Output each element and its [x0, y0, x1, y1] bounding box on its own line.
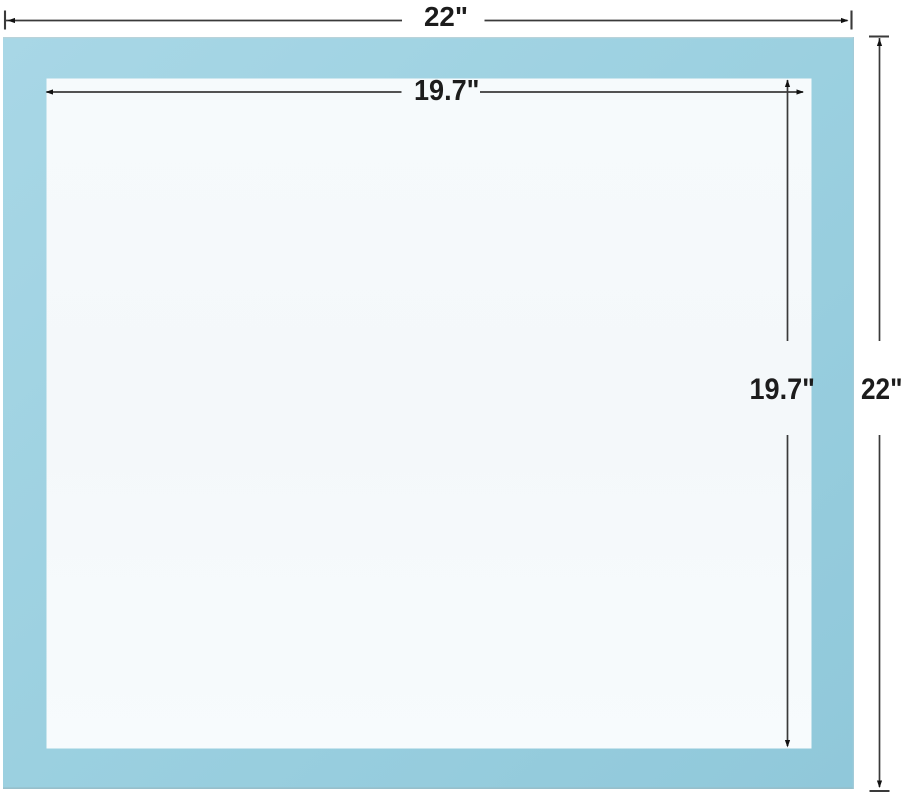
- svg-text:22": 22": [861, 373, 903, 406]
- svg-text:22": 22": [424, 1, 468, 32]
- svg-text:19.7": 19.7": [414, 75, 480, 107]
- svg-text:19.7": 19.7": [750, 373, 816, 406]
